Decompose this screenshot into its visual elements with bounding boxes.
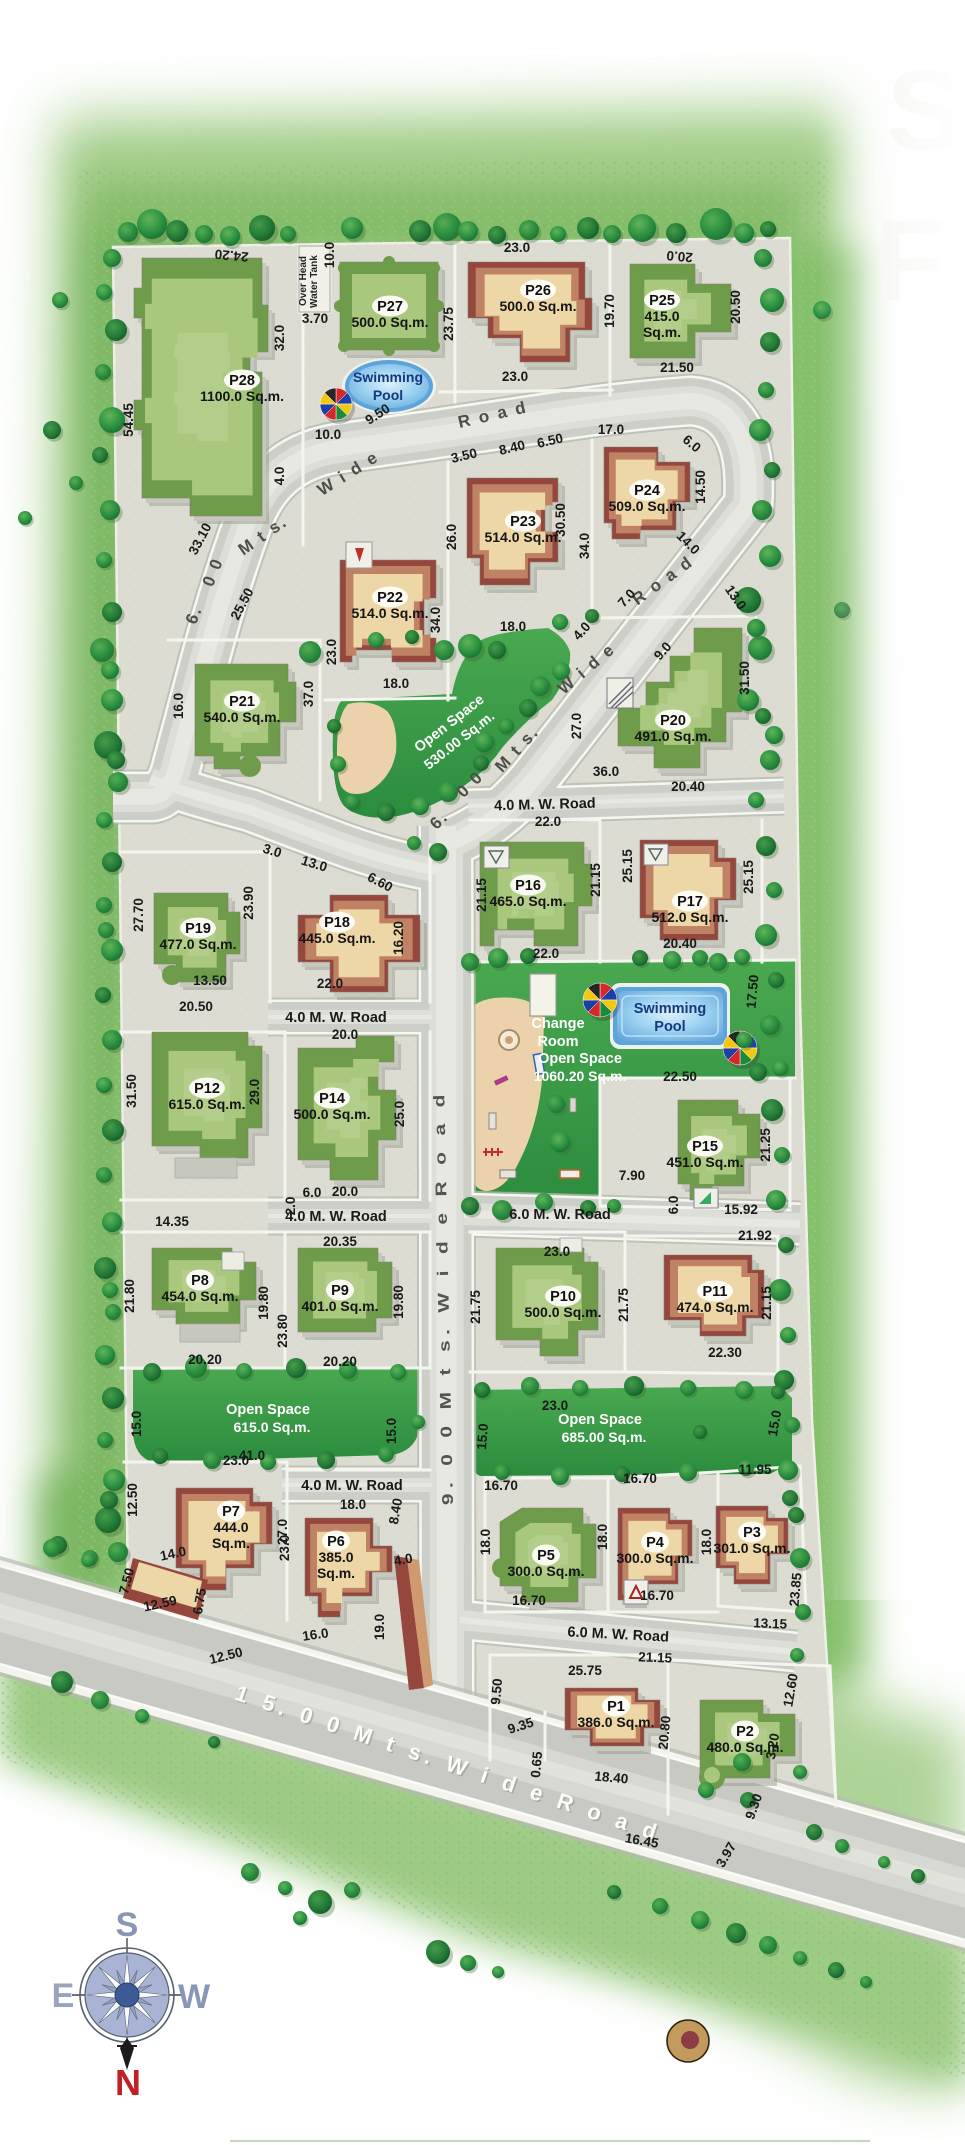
svg-text:P19: P19 bbox=[185, 921, 211, 937]
svg-text:465.0 Sq.m.: 465.0 Sq.m. bbox=[489, 893, 566, 909]
svg-text:19.0: 19.0 bbox=[372, 1614, 387, 1640]
svg-text:685.00 Sq.m.: 685.00 Sq.m. bbox=[562, 1429, 647, 1445]
svg-text:4.0: 4.0 bbox=[393, 1551, 414, 1569]
svg-text:21.75: 21.75 bbox=[468, 1290, 483, 1324]
svg-text:9.50: 9.50 bbox=[488, 1678, 505, 1705]
svg-text:P11: P11 bbox=[703, 1284, 728, 1300]
svg-text:37.0: 37.0 bbox=[301, 681, 316, 707]
svg-text:454.0 Sq.m.: 454.0 Sq.m. bbox=[161, 1288, 238, 1304]
svg-text:23.75: 23.75 bbox=[441, 307, 456, 341]
svg-text:444.0: 444.0 bbox=[213, 1519, 248, 1535]
svg-text:18.0: 18.0 bbox=[478, 1529, 493, 1555]
svg-text:P8: P8 bbox=[191, 1273, 209, 1289]
svg-text:19.80: 19.80 bbox=[391, 1285, 406, 1319]
svg-text:23.0: 23.0 bbox=[277, 1535, 292, 1561]
svg-text:4.0: 4.0 bbox=[272, 467, 287, 486]
svg-text:P12: P12 bbox=[194, 1081, 220, 1097]
svg-text:20.40: 20.40 bbox=[663, 936, 697, 951]
svg-text:29.0: 29.0 bbox=[247, 1079, 262, 1105]
svg-text:20.35: 20.35 bbox=[323, 1234, 357, 1249]
svg-text:301.0 Sq.m.: 301.0 Sq.m. bbox=[713, 1540, 790, 1556]
svg-text:34.0: 34.0 bbox=[577, 533, 592, 559]
svg-text:Sq.m.: Sq.m. bbox=[212, 1535, 250, 1551]
svg-text:Change: Change bbox=[531, 1016, 584, 1032]
svg-text:P21: P21 bbox=[229, 694, 255, 710]
svg-text:21.80: 21.80 bbox=[122, 1279, 137, 1313]
svg-text:16.0: 16.0 bbox=[171, 693, 186, 719]
svg-text:15.0: 15.0 bbox=[384, 1418, 399, 1444]
svg-text:23.90: 23.90 bbox=[241, 886, 256, 920]
svg-text:20.50: 20.50 bbox=[179, 999, 213, 1014]
svg-text:E: E bbox=[52, 1977, 75, 2015]
svg-text:509.0 Sq.m.: 509.0 Sq.m. bbox=[608, 498, 685, 514]
svg-text:P3: P3 bbox=[743, 1525, 761, 1541]
svg-text:25.75: 25.75 bbox=[568, 1663, 602, 1678]
svg-text:32.0: 32.0 bbox=[272, 325, 287, 351]
svg-text:S: S bbox=[116, 1906, 139, 1944]
svg-text:500.0 Sq.m.: 500.0 Sq.m. bbox=[351, 314, 428, 330]
svg-text:4.0 M. W. Road: 4.0 M. W. Road bbox=[301, 1478, 403, 1494]
svg-text:27.70: 27.70 bbox=[131, 898, 146, 932]
svg-text:54.45: 54.45 bbox=[121, 403, 136, 437]
svg-text:385.0: 385.0 bbox=[318, 1549, 353, 1565]
svg-text:P10: P10 bbox=[550, 1289, 576, 1305]
svg-text:Room: Room bbox=[537, 1034, 578, 1050]
svg-text:23.0: 23.0 bbox=[504, 240, 530, 255]
svg-text:16.70: 16.70 bbox=[484, 1478, 518, 1493]
svg-text:451.0 Sq.m.: 451.0 Sq.m. bbox=[666, 1154, 743, 1170]
svg-text:474.0 Sq.m.: 474.0 Sq.m. bbox=[676, 1299, 753, 1315]
svg-text:Open Space: Open Space bbox=[558, 1412, 642, 1428]
svg-text:386.0 Sq.m.: 386.0 Sq.m. bbox=[577, 1714, 654, 1730]
svg-text:10.0: 10.0 bbox=[315, 427, 341, 442]
svg-text:300.0 Sq.m.: 300.0 Sq.m. bbox=[616, 1550, 693, 1566]
svg-text:Swimming: Swimming bbox=[353, 369, 423, 385]
svg-text:Water Tank: Water Tank bbox=[309, 255, 320, 308]
svg-text:P9: P9 bbox=[331, 1283, 349, 1299]
svg-text:Sq.m.: Sq.m. bbox=[317, 1565, 355, 1581]
svg-text:540.0 Sq.m.: 540.0 Sq.m. bbox=[203, 709, 280, 725]
svg-text:22.0: 22.0 bbox=[535, 814, 561, 829]
svg-text:14.35: 14.35 bbox=[155, 1214, 189, 1229]
svg-text:18.0: 18.0 bbox=[340, 1497, 366, 1512]
svg-text:23.0: 23.0 bbox=[324, 639, 339, 665]
svg-text:20.40: 20.40 bbox=[671, 779, 705, 794]
svg-text:1100.0 Sq.m.: 1100.0 Sq.m. bbox=[200, 388, 284, 404]
svg-text:512.0 Sq.m.: 512.0 Sq.m. bbox=[651, 909, 728, 925]
svg-text:P27: P27 bbox=[377, 299, 403, 315]
svg-text:17.0: 17.0 bbox=[598, 422, 624, 437]
svg-text:18.0: 18.0 bbox=[699, 1529, 714, 1555]
svg-text:16.70: 16.70 bbox=[623, 1471, 657, 1486]
svg-text:6.0: 6.0 bbox=[666, 1196, 681, 1215]
svg-text:P7: P7 bbox=[222, 1504, 240, 1520]
svg-text:31.50: 31.50 bbox=[124, 1074, 139, 1108]
svg-text:3.70: 3.70 bbox=[302, 311, 328, 326]
svg-text:P25: P25 bbox=[649, 293, 675, 309]
svg-text:10.0: 10.0 bbox=[322, 242, 337, 268]
svg-text:514.0 Sq.m.: 514.0 Sq.m. bbox=[484, 529, 561, 545]
svg-text:24.20: 24.20 bbox=[214, 247, 249, 265]
svg-text:445.0 Sq.m.: 445.0 Sq.m. bbox=[298, 930, 375, 946]
svg-text:15.0: 15.0 bbox=[129, 1411, 144, 1437]
svg-text:Pool: Pool bbox=[373, 387, 403, 403]
svg-text:P4: P4 bbox=[646, 1535, 664, 1551]
svg-text:615.0 Sq.m.: 615.0 Sq.m. bbox=[168, 1096, 245, 1112]
svg-text:23.80: 23.80 bbox=[275, 1314, 290, 1348]
svg-text:15.0: 15.0 bbox=[474, 1423, 491, 1450]
svg-text:23.0: 23.0 bbox=[542, 1398, 568, 1413]
svg-text:27.0: 27.0 bbox=[569, 713, 584, 739]
svg-text:21.15: 21.15 bbox=[474, 878, 489, 912]
svg-text:P15: P15 bbox=[692, 1139, 718, 1155]
svg-text:21.15: 21.15 bbox=[588, 863, 603, 897]
svg-text:20.20: 20.20 bbox=[323, 1354, 357, 1369]
svg-text:14.50: 14.50 bbox=[693, 470, 708, 504]
svg-text:6.0: 6.0 bbox=[303, 1185, 322, 1200]
svg-text:P28: P28 bbox=[229, 373, 255, 389]
svg-text:P22: P22 bbox=[377, 590, 403, 606]
svg-text:15.92: 15.92 bbox=[724, 1202, 758, 1217]
svg-text:25.0: 25.0 bbox=[392, 1101, 407, 1127]
svg-text:21.25: 21.25 bbox=[758, 1128, 773, 1162]
svg-text:25.15: 25.15 bbox=[741, 860, 756, 894]
svg-text:21.92: 21.92 bbox=[738, 1228, 772, 1243]
svg-text:4.0 M. W. Road: 4.0 M. W. Road bbox=[494, 796, 596, 815]
svg-text:P1: P1 bbox=[607, 1699, 625, 1715]
svg-text:7.90: 7.90 bbox=[619, 1168, 645, 1183]
svg-text:18.0: 18.0 bbox=[500, 619, 526, 634]
svg-text:P20: P20 bbox=[660, 713, 686, 729]
svg-text:22.30: 22.30 bbox=[708, 1345, 742, 1360]
svg-text:300.0 Sq.m.: 300.0 Sq.m. bbox=[507, 1563, 584, 1579]
svg-text:Open Space: Open Space bbox=[538, 1051, 622, 1067]
svg-text:20.80: 20.80 bbox=[656, 1715, 674, 1750]
svg-text:W: W bbox=[178, 1978, 211, 2016]
svg-text:491.0 Sq.m.: 491.0 Sq.m. bbox=[634, 728, 711, 744]
svg-text:12.50: 12.50 bbox=[125, 1483, 140, 1517]
svg-text:21.75: 21.75 bbox=[616, 1288, 631, 1322]
svg-text:P24: P24 bbox=[634, 483, 660, 499]
svg-text:36.0: 36.0 bbox=[593, 764, 619, 779]
svg-text:P2: P2 bbox=[736, 1724, 754, 1740]
svg-text:477.0 Sq.m.: 477.0 Sq.m. bbox=[159, 936, 236, 952]
svg-text:34.0: 34.0 bbox=[428, 607, 443, 633]
svg-text:P6: P6 bbox=[327, 1534, 345, 1550]
svg-text:6.0 M. W. Road: 6.0 M. W. Road bbox=[509, 1207, 611, 1223]
svg-text:20.0: 20.0 bbox=[332, 1184, 358, 1199]
svg-text:23.85: 23.85 bbox=[787, 1572, 805, 1607]
svg-text:13.15: 13.15 bbox=[753, 1615, 788, 1631]
svg-text:415.0: 415.0 bbox=[644, 308, 679, 324]
svg-text:N: N bbox=[115, 2062, 141, 2103]
svg-text:P26: P26 bbox=[525, 283, 551, 299]
svg-text:19.80: 19.80 bbox=[256, 1286, 271, 1320]
svg-text:P16: P16 bbox=[515, 878, 541, 894]
svg-text:4.0 M. W. Road: 4.0 M. W. Road bbox=[285, 1010, 387, 1026]
svg-text:Pool: Pool bbox=[654, 1019, 685, 1035]
svg-text:20.50: 20.50 bbox=[728, 290, 743, 324]
svg-text:P14: P14 bbox=[319, 1091, 345, 1107]
svg-text:500.0 Sq.m.: 500.0 Sq.m. bbox=[293, 1106, 370, 1122]
svg-text:26.0: 26.0 bbox=[444, 524, 459, 550]
svg-text:18.0: 18.0 bbox=[383, 676, 409, 691]
svg-text:17.50: 17.50 bbox=[744, 974, 762, 1009]
svg-text:2.0: 2.0 bbox=[283, 1197, 298, 1216]
svg-text:20.0: 20.0 bbox=[666, 248, 693, 265]
svg-text:Open Space: Open Space bbox=[226, 1402, 310, 1418]
svg-text:23.0: 23.0 bbox=[544, 1244, 570, 1259]
svg-text:31.50: 31.50 bbox=[737, 661, 752, 695]
svg-text:23.0: 23.0 bbox=[502, 369, 528, 384]
svg-text:1060.20 Sq.m.: 1060.20 Sq.m. bbox=[534, 1068, 627, 1084]
svg-text:11.95: 11.95 bbox=[738, 1462, 772, 1477]
svg-text:Over Head: Over Head bbox=[298, 256, 309, 306]
svg-text:22.0: 22.0 bbox=[317, 976, 343, 991]
svg-text:0.65: 0.65 bbox=[528, 1750, 545, 1778]
svg-text:18.40: 18.40 bbox=[594, 1769, 629, 1787]
svg-text:21.15: 21.15 bbox=[759, 1286, 774, 1320]
svg-text:23.0: 23.0 bbox=[223, 1453, 249, 1468]
svg-text:20.0: 20.0 bbox=[332, 1027, 358, 1042]
svg-text:4.0 M. W. Road: 4.0 M. W. Road bbox=[285, 1209, 387, 1225]
svg-text:500.0 Sq.m.: 500.0 Sq.m. bbox=[499, 298, 576, 314]
svg-text:P5: P5 bbox=[537, 1548, 555, 1564]
svg-text:13.50: 13.50 bbox=[193, 973, 227, 988]
svg-text:Swimming: Swimming bbox=[634, 1001, 707, 1017]
svg-text:P17: P17 bbox=[677, 894, 703, 910]
svg-text:16.70: 16.70 bbox=[512, 1593, 546, 1608]
svg-text:22.0: 22.0 bbox=[533, 946, 559, 961]
svg-text:401.0 Sq.m.: 401.0 Sq.m. bbox=[301, 1298, 378, 1314]
svg-text:18.0: 18.0 bbox=[595, 1524, 610, 1550]
svg-text:P23: P23 bbox=[510, 514, 536, 530]
svg-text:16.20: 16.20 bbox=[391, 921, 406, 955]
svg-text:500.0 Sq.m.: 500.0 Sq.m. bbox=[524, 1304, 601, 1320]
svg-text:21.15: 21.15 bbox=[638, 1649, 673, 1665]
svg-text:21.50: 21.50 bbox=[660, 360, 694, 375]
svg-text:615.0 Sq.m.: 615.0 Sq.m. bbox=[233, 1419, 310, 1435]
svg-text:25.15: 25.15 bbox=[620, 849, 635, 883]
svg-text:16.70: 16.70 bbox=[640, 1588, 674, 1603]
svg-text:19.70: 19.70 bbox=[602, 294, 617, 328]
svg-text:22.50: 22.50 bbox=[663, 1069, 697, 1084]
svg-text:Sq.m.: Sq.m. bbox=[643, 324, 681, 340]
svg-text:P18: P18 bbox=[324, 915, 350, 931]
svg-text:20.20: 20.20 bbox=[188, 1352, 222, 1367]
svg-text:514.0 Sq.m.: 514.0 Sq.m. bbox=[351, 605, 428, 621]
svg-text:30.50: 30.50 bbox=[553, 503, 568, 537]
